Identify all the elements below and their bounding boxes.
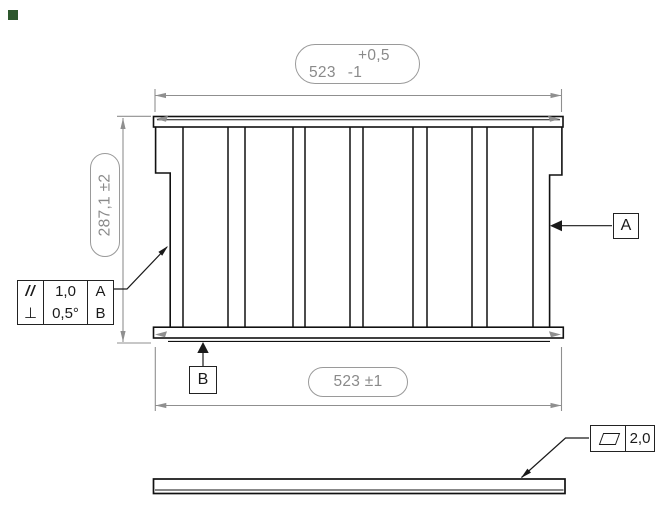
fcf-leader [113,247,167,289]
perpendicularity-tolerance: 0,5° [44,302,88,325]
fcf-parallelism: // 1,0 A [17,280,114,303]
fcf-perpendicularity: ⊥ 0,5° B [17,302,114,325]
datum-a-label: A [621,217,632,235]
parallelogram-icon [590,425,626,452]
parallelism-datum: A [88,280,114,303]
side-view-bar [154,479,566,494]
dimension-value: 523 ±1 [333,373,382,391]
side-view [154,479,566,494]
tolerance-lower: -1 [348,64,362,81]
flatness-leader [522,438,590,478]
front-view [154,117,564,342]
perpendicularity-datum: B [88,302,114,325]
dimension-arrowheads [120,93,561,408]
drawing-canvas: +0,5 523 -1 287,1 ±2 523 ±1 A B // 1,0 A… [0,0,662,505]
dimension-value: 287,1 ±2 [96,174,114,237]
datum-b-label: B [198,371,209,389]
top-rail [154,117,564,128]
tolerance-upper: +0,5 [358,47,390,64]
slat-lines [183,128,533,328]
dimension-value: 523 [309,64,336,81]
flatness-tolerance: 2,0 [626,425,655,452]
datum-b-box: B [189,366,217,394]
dimension-top-balloon: +0,5 523 -1 [295,44,420,84]
datum-a-box: A [613,213,639,239]
datum-b-triangle [197,342,208,353]
perpendicularity-icon: ⊥ [17,302,44,325]
bottom-rail [154,327,564,338]
body-left-edge [156,128,171,328]
datum-a-triangle [550,220,562,231]
parallelism-tolerance: 1,0 [44,280,88,303]
dimension-left-balloon: 287,1 ±2 [90,153,120,257]
annotation-arrowheads [158,220,562,478]
dimension-bottom-balloon: 523 ±1 [308,367,408,397]
parallelism-icon: // [17,280,44,303]
dimension-value-row: 523 -1 [309,64,362,81]
fcf-flatness: 2,0 [590,425,655,452]
